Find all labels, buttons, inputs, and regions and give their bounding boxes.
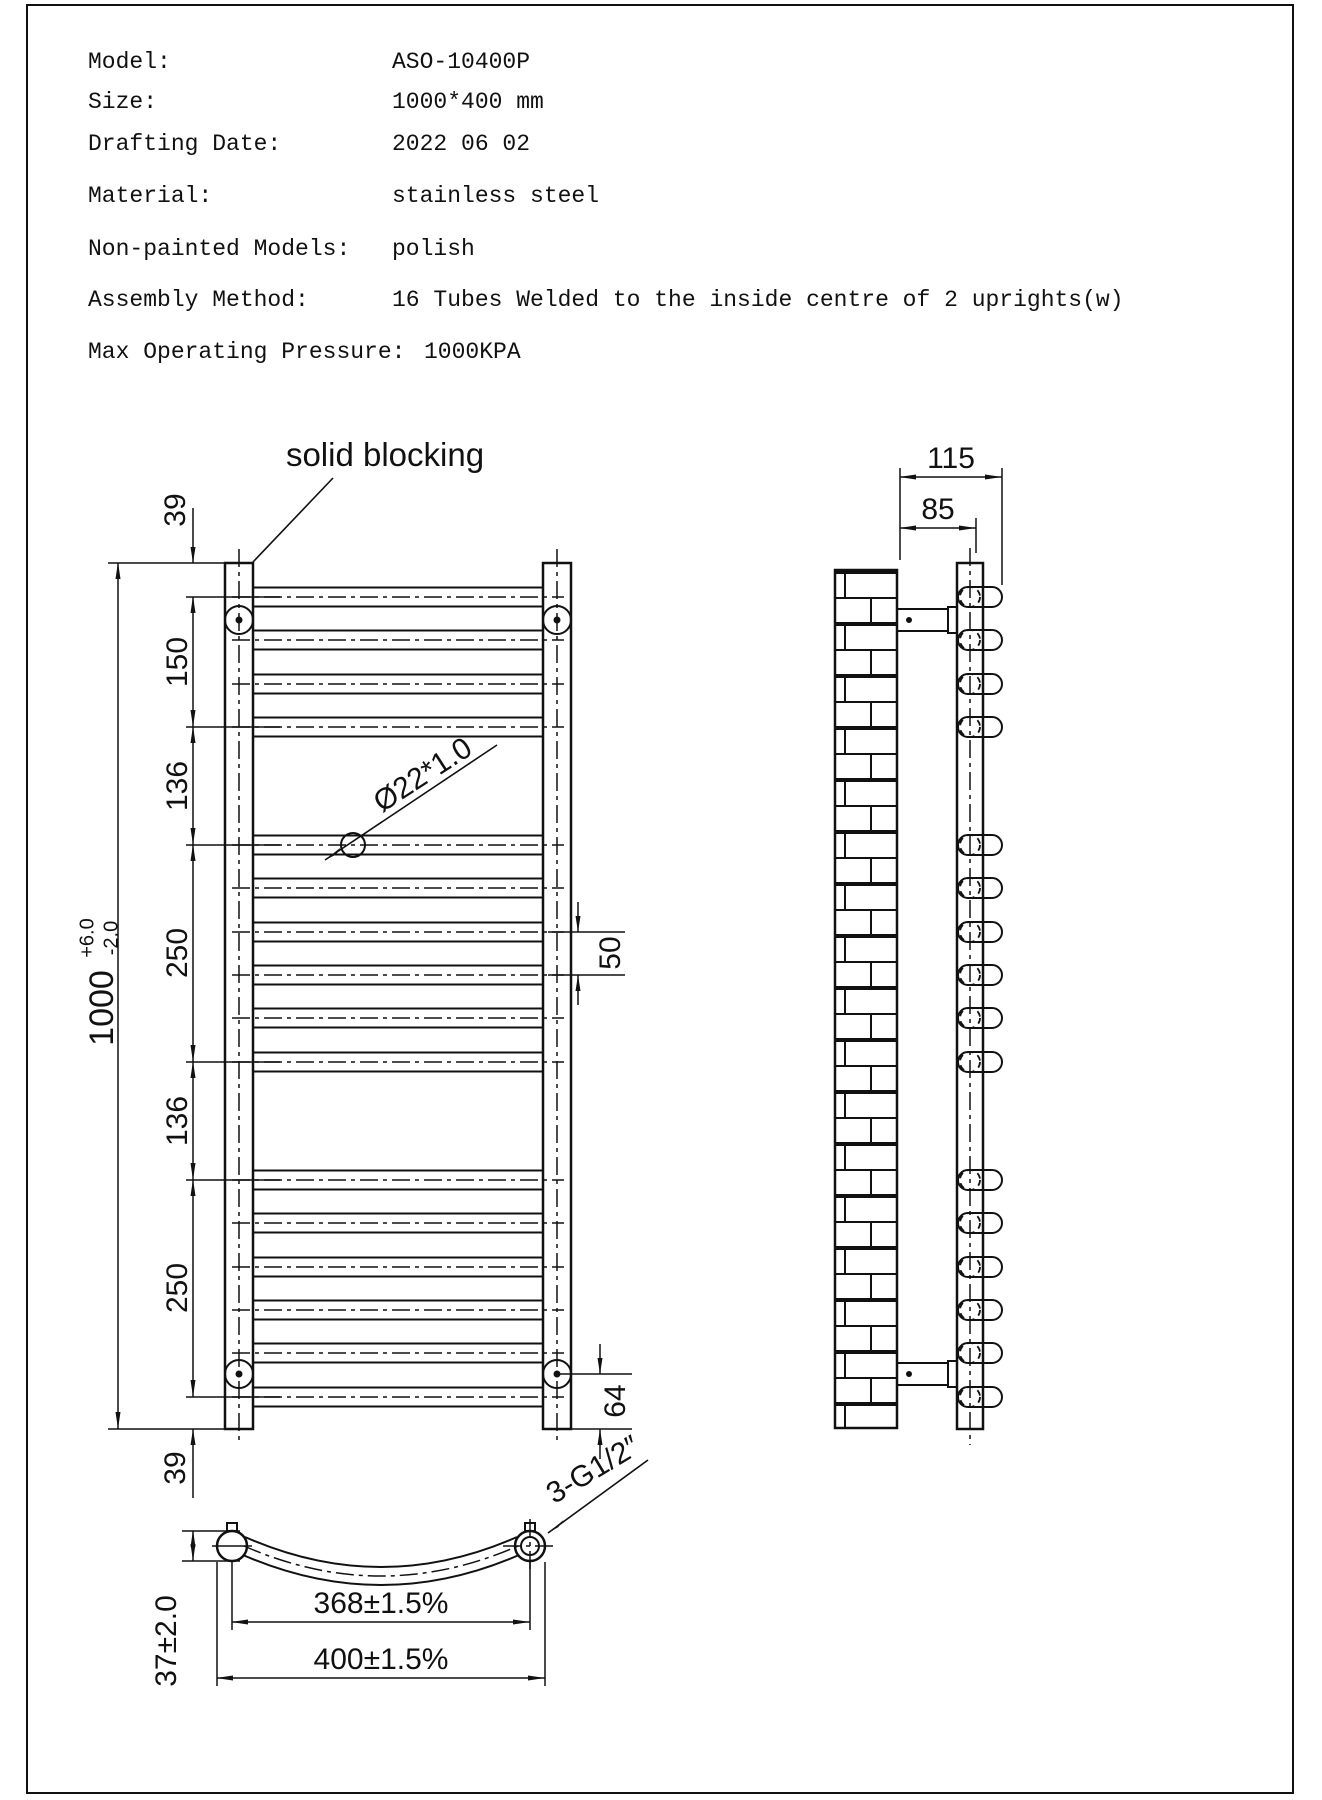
- spec-row: Size: 1000*400 mm: [88, 89, 544, 115]
- tube: [232, 1301, 564, 1320]
- spec-value: 1000KPA: [424, 339, 521, 365]
- tube: [232, 1214, 564, 1233]
- dim-tolerance-plus: +6.0: [76, 918, 98, 957]
- dim-85: 85: [921, 493, 954, 526]
- dim-arrow: [191, 1429, 196, 1445]
- dim-136-lower: 136: [161, 1096, 194, 1146]
- dim-150: 150: [161, 637, 194, 687]
- spec-value: ASO-10400P: [392, 49, 530, 75]
- dim-368: 368±1.5%: [314, 1587, 449, 1620]
- tube-end: [958, 630, 1002, 650]
- curved-tube-outer-edge: [243, 1555, 519, 1585]
- spec-label: Max Operating Pressure:: [88, 339, 405, 365]
- leader-line: [253, 478, 333, 562]
- tube: [232, 718, 564, 737]
- spec-value: stainless steel: [392, 183, 599, 209]
- tube: [232, 675, 564, 694]
- dim-250-upper: 250: [161, 928, 194, 978]
- dim-arrow: [576, 916, 581, 932]
- spec-block: Model: ASO-10400P Size: 1000*400 mm Draf…: [88, 49, 1124, 365]
- tube: [232, 1258, 564, 1277]
- tube-end: [958, 1257, 1002, 1277]
- spec-value: 1000*400 mm: [392, 89, 544, 115]
- tube: [232, 1053, 564, 1072]
- dim-400: 400±1.5%: [314, 1643, 449, 1676]
- technical-drawing: Model: ASO-10400P Size: 1000*400 mm Draf…: [0, 0, 1322, 1800]
- solid-blocking-label: solid blocking: [286, 436, 484, 473]
- spec-label: Assembly Method:: [88, 287, 309, 313]
- dim-1000: 1000: [83, 970, 121, 1046]
- side-view: 115 85: [835, 442, 1002, 1445]
- dim-115: 115: [927, 442, 975, 475]
- wall-bracket: [897, 1361, 957, 1387]
- spec-row: Model: ASO-10400P: [88, 49, 530, 75]
- dim-arrow: [598, 1429, 603, 1445]
- spec-value: 2022 06 02: [392, 131, 530, 157]
- dim-arrow: [598, 1358, 603, 1374]
- tube-end: [958, 835, 1002, 855]
- spec-label: Drafting Date:: [88, 131, 281, 157]
- spec-row: Non-painted Models: polish: [88, 236, 475, 262]
- spec-row: Max Operating Pressure: 1000KPA: [88, 339, 521, 365]
- dim-64: 64: [599, 1384, 632, 1417]
- tube: [232, 1388, 564, 1407]
- tube-end: [958, 922, 1002, 942]
- spec-row: Material: stainless steel: [88, 183, 599, 209]
- dim-50: 50: [594, 936, 627, 969]
- tube-end: [958, 1008, 1002, 1028]
- tube: [232, 836, 564, 855]
- sheet-border: [27, 5, 1293, 1793]
- spec-row: Drafting Date: 2022 06 02: [88, 131, 530, 157]
- dim-39-bottom: 39: [159, 1451, 192, 1484]
- tube-end: [958, 878, 1002, 898]
- tube: [232, 1009, 564, 1028]
- tube-end: [958, 1052, 1002, 1072]
- spec-value: 16 Tubes Welded to the inside centre of …: [392, 287, 1124, 313]
- tube: [232, 966, 564, 985]
- tube-end: [958, 717, 1002, 737]
- tube: [232, 631, 564, 650]
- dim-250-lower: 250: [161, 1263, 194, 1313]
- tube-end: [958, 1213, 1002, 1233]
- tube-end: [958, 674, 1002, 694]
- dim-tolerance-minus: -2.0: [100, 921, 122, 955]
- tube-end: [958, 1170, 1002, 1190]
- dim-37: 37±2.0: [150, 1595, 183, 1687]
- tube: [232, 1344, 564, 1363]
- tube-end: [958, 587, 1002, 607]
- curved-tube-inner-edge: [245, 1537, 517, 1567]
- dim-39-top: 39: [159, 493, 192, 526]
- wall-bracket: [897, 607, 957, 633]
- tube: [232, 1171, 564, 1190]
- front-view: solid blocking 39 150 136 250 136 250 39…: [76, 436, 632, 1498]
- dim-thread: 3-G1/2″: [541, 1429, 646, 1510]
- tube: [232, 923, 564, 942]
- spec-row: Assembly Method: 16 Tubes Welded to the …: [88, 287, 1124, 313]
- spec-value: polish: [392, 236, 475, 262]
- tube-end: [958, 1300, 1002, 1320]
- tube-end: [958, 965, 1002, 985]
- brick-wall: [835, 570, 897, 1428]
- tube: [232, 879, 564, 898]
- dim-arrow: [191, 547, 196, 563]
- spec-label: Model:: [88, 49, 171, 75]
- drawing-sheet: Model: ASO-10400P Size: 1000*400 mm Draf…: [0, 0, 1322, 1800]
- tube-end: [958, 1343, 1002, 1363]
- dim-tube-spec: Ø22*1.0: [368, 731, 478, 819]
- dim-136-upper: 136: [161, 761, 194, 811]
- spec-label: Size:: [88, 89, 157, 115]
- tube-end: [958, 1387, 1002, 1407]
- spec-label: Non-painted Models:: [88, 236, 350, 262]
- spec-label: Material:: [88, 183, 212, 209]
- tube: [232, 588, 564, 607]
- dim-arrow: [576, 975, 581, 991]
- plan-view: 37±2.0 368±1.5% 400±1.5% 3-G1/2″: [150, 1429, 648, 1687]
